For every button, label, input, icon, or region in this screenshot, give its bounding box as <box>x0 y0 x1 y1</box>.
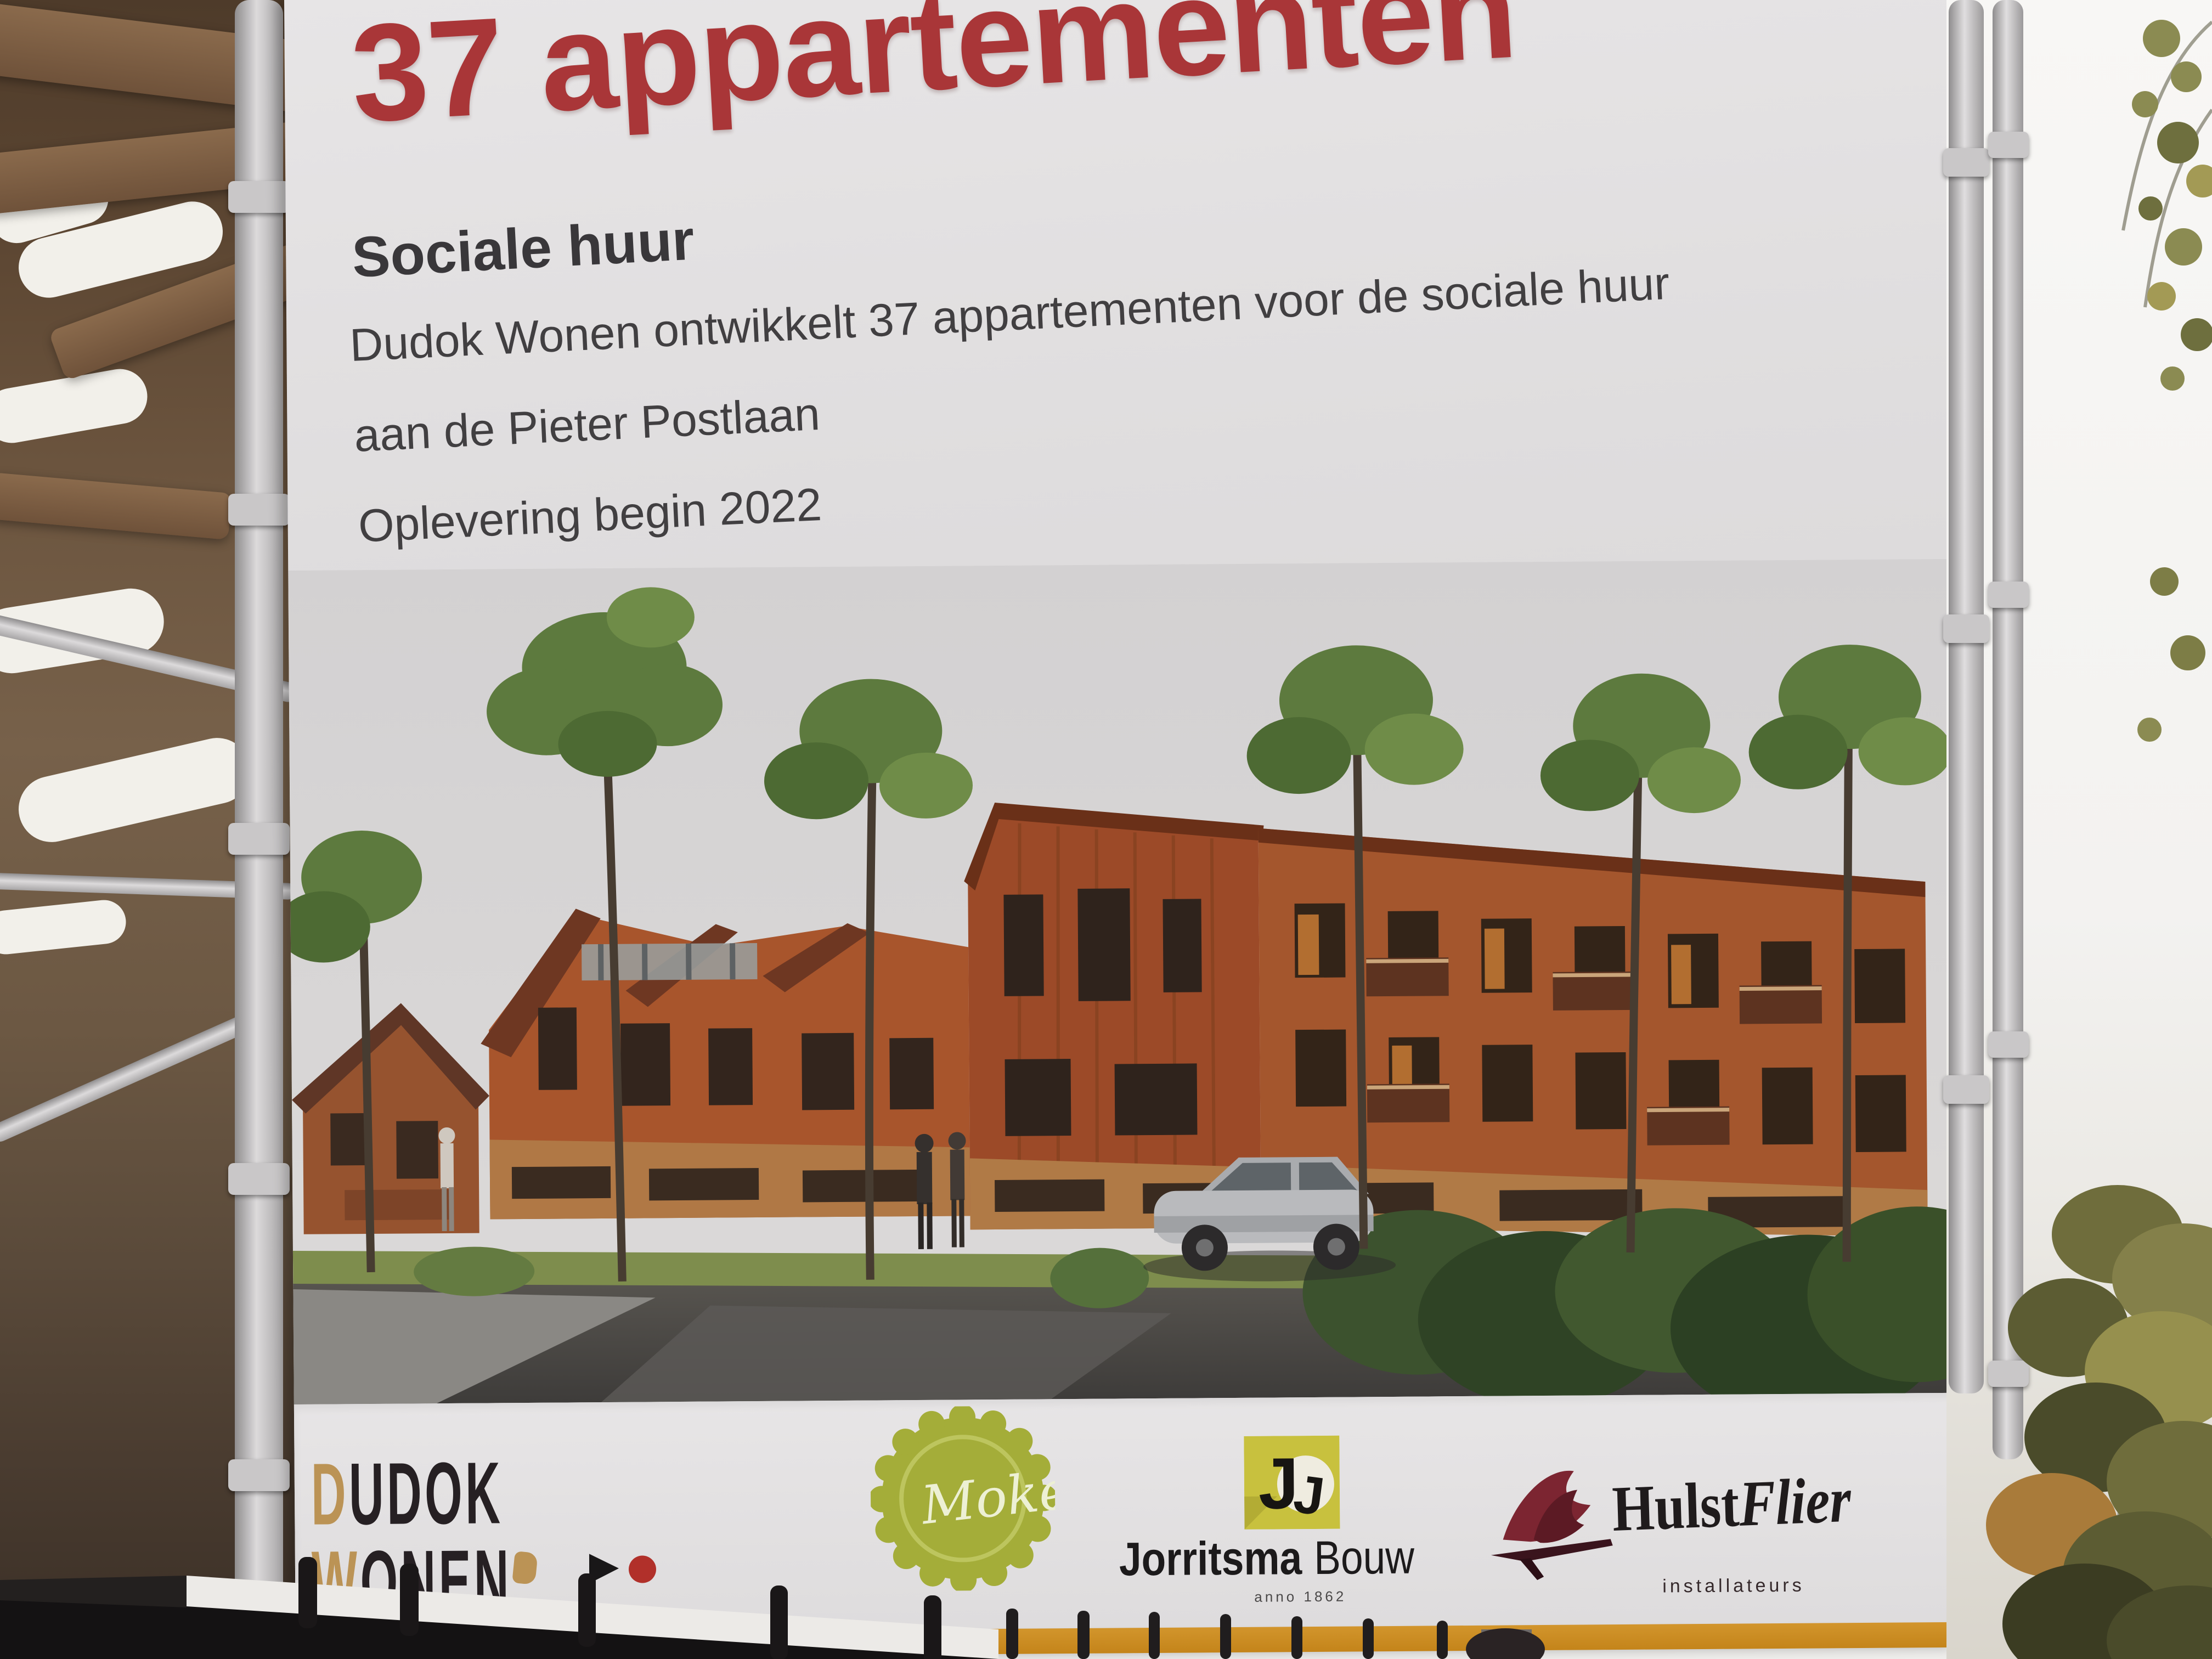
sky-gap <box>12 731 257 849</box>
scaffold-coupler <box>228 1459 290 1491</box>
rendering-building-corner <box>963 801 1266 1230</box>
construction-site-photo: 37 appartementen Sociale huur Dudok Wone… <box>0 0 2212 1659</box>
rendering-building-left-wing <box>480 906 970 1219</box>
scaffold-coupler <box>228 181 290 213</box>
scaffold-coupler <box>228 1163 290 1195</box>
wooden-beam <box>0 472 232 540</box>
hulstflier-name: HulstFlier <box>1611 1463 1852 1547</box>
billboard-body: Dudok Wonen ontwikkelt 37 appartementen … <box>348 238 1680 572</box>
scaffold-coupler <box>228 823 290 855</box>
autumn-foliage <box>1887 0 2212 1659</box>
billboard-title: 37 appartementen <box>347 0 1520 154</box>
fence-post-thin <box>1006 1609 1448 1659</box>
dudok-line1: DUDOK <box>311 1449 511 1538</box>
jorritsma-icon: J J <box>1244 1436 1340 1530</box>
building-rendering-image <box>288 559 1956 1404</box>
scaffolding-left <box>0 0 299 1659</box>
billboard-subtitle: Sociale huur <box>351 208 696 291</box>
project-billboard: 37 appartementen Sociale huur Dudok Wone… <box>284 0 1958 1659</box>
sky-gap <box>0 898 128 957</box>
fence-silhouette <box>0 1547 2212 1659</box>
scaffold-coupler <box>228 494 290 526</box>
